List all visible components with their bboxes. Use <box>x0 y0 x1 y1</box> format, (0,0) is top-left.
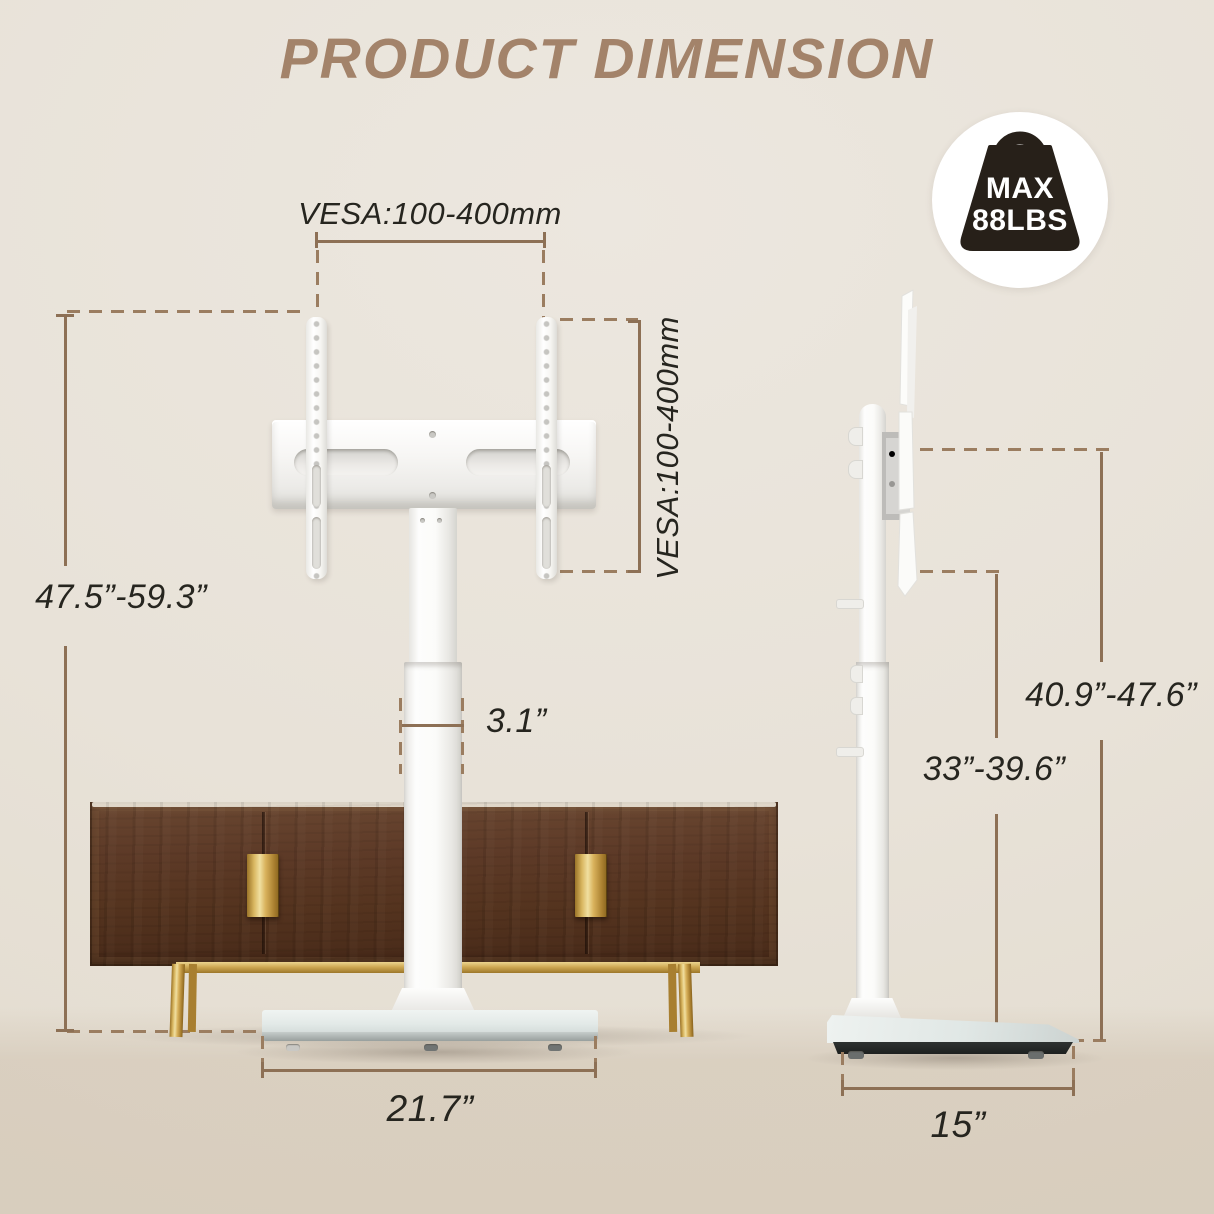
dimension-tick <box>315 232 318 248</box>
upper-height-dimension-line <box>1100 452 1103 662</box>
lower-height-dimension-line <box>995 814 998 1040</box>
base-foot <box>548 1044 562 1051</box>
stand-height-label: 47.5”-59.3” <box>6 578 236 617</box>
dimension-tick <box>261 1062 264 1078</box>
dimension-tick <box>1072 1080 1075 1096</box>
pole-width-dimension-line <box>402 724 464 727</box>
extension-dash <box>560 570 638 573</box>
base-width-label: 21.7” <box>330 1088 530 1130</box>
rail-slot <box>542 465 551 507</box>
pole-width-label: 3.1” <box>486 702 547 741</box>
dimension-tick <box>628 320 640 323</box>
base-width-dimension-line <box>263 1069 597 1072</box>
base-foot <box>286 1044 300 1051</box>
badge-max-label: MAX <box>932 172 1108 206</box>
upper-height-label: 40.9”-47.6” <box>1008 676 1214 715</box>
base-foot <box>848 1051 864 1059</box>
mount-knob <box>848 427 863 446</box>
cable-clip <box>836 747 864 757</box>
stand-pole-upper <box>409 508 457 664</box>
dimension-tick <box>56 314 74 317</box>
cabinet-leg <box>169 964 185 1037</box>
dimension-tick <box>56 1029 74 1032</box>
tv-bracket-side-icon <box>882 286 928 598</box>
dimension-tick <box>594 1062 597 1078</box>
rail-slot <box>312 465 321 507</box>
cabinet-handle <box>247 854 279 917</box>
crossbar-screw <box>429 492 436 499</box>
extension-dash <box>67 1030 261 1033</box>
base-foot <box>424 1044 438 1051</box>
rail-slot <box>312 517 321 569</box>
extension-dash <box>920 448 1114 451</box>
extension-dash <box>920 570 1006 573</box>
product-dimension-diagram: PRODUCT DIMENSION MAX 88LBS VESA:100-400… <box>0 0 1214 1214</box>
page-title: PRODUCT DIMENSION <box>0 26 1214 92</box>
stand-pole-lower <box>404 662 462 990</box>
cable-clip <box>850 665 863 683</box>
badge-weight-label: 88LBS <box>932 204 1108 238</box>
vesa-width-dimension-line <box>317 240 545 243</box>
vesa-rail-right <box>536 317 557 579</box>
crossbar-screw <box>429 431 436 438</box>
max-weight-badge: MAX 88LBS <box>932 112 1108 288</box>
cabinet-leg <box>668 964 677 1032</box>
cable-clip <box>836 599 864 609</box>
cabinet-leg <box>678 964 694 1037</box>
extension-dash <box>316 250 319 314</box>
upper-height-dimension-line <box>1100 740 1103 1040</box>
cabinet-handle <box>575 854 607 917</box>
stand-base-top <box>262 1010 598 1034</box>
vesa-height-label: VESA:100-400mm <box>648 313 688 583</box>
base-depth-label: 15” <box>878 1104 1038 1146</box>
cabinet-leg <box>188 964 197 1032</box>
dimension-tick <box>841 1080 844 1096</box>
vesa-rail-left <box>306 317 327 579</box>
dimension-tick <box>628 570 640 573</box>
extension-dash <box>67 310 307 313</box>
vesa-width-label: VESA:100-400mm <box>280 196 580 232</box>
cable-clip <box>850 697 863 715</box>
base-foot <box>1028 1051 1044 1059</box>
extension-dash <box>461 698 464 774</box>
pole-screw <box>437 518 442 523</box>
lower-height-label: 33”-39.6” <box>900 750 1088 789</box>
lower-height-dimension-line <box>995 574 998 738</box>
extension-dash <box>560 318 638 321</box>
vesa-height-dimension-line <box>638 320 641 573</box>
rail-slot <box>542 517 551 569</box>
pole-screw <box>420 518 425 523</box>
stand-height-dimension-line <box>64 316 67 566</box>
dimension-tick <box>543 232 546 248</box>
base-depth-dimension-line <box>843 1087 1075 1090</box>
stand-height-dimension-line <box>64 646 67 1032</box>
extension-dash <box>399 698 402 774</box>
mount-knob <box>848 460 863 479</box>
extension-dash <box>542 250 545 322</box>
side-base-neck <box>843 998 901 1018</box>
